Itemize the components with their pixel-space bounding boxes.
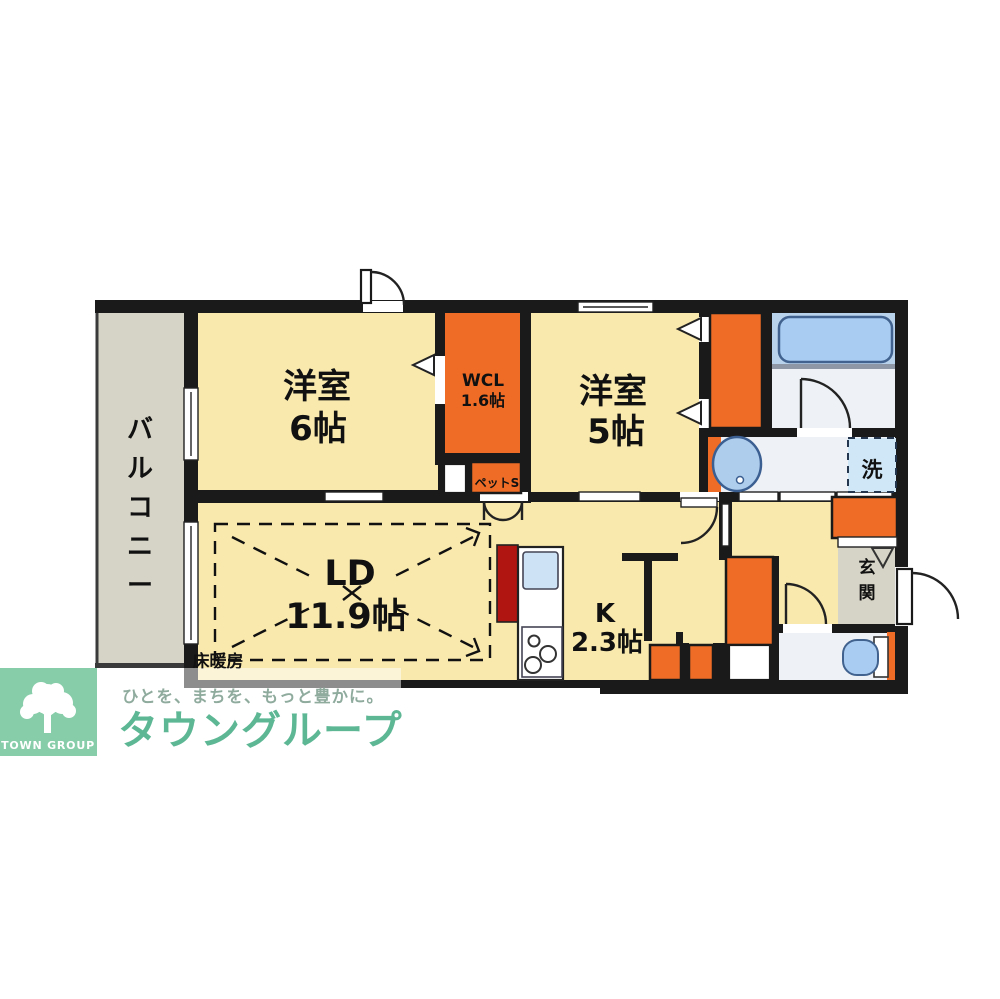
ld-size: 11.9帖	[285, 597, 406, 637]
logo-backdrop-fade	[96, 668, 401, 688]
closet-door-gap	[435, 356, 445, 404]
brand-company-name: タウングループ	[118, 708, 403, 754]
stove-burner	[529, 636, 540, 647]
brand-tagline: ひとを、まちを、もっと豊かに。	[122, 686, 384, 706]
kitchen-cabinet	[689, 645, 713, 680]
stove-burner	[540, 646, 556, 662]
kitchen-label: K	[595, 599, 616, 629]
tree-canopy	[48, 683, 64, 699]
sliding-opening	[722, 504, 729, 546]
ld-label: LD	[324, 554, 375, 594]
top-door-leaf	[361, 270, 371, 303]
hall-closet	[726, 557, 773, 645]
hall-door-leaf	[681, 498, 717, 507]
wall-segment	[713, 643, 729, 680]
bathroom-floor	[772, 369, 895, 428]
small-cabinet	[729, 645, 770, 680]
sliding-opening	[780, 492, 835, 501]
entrance-door-arc	[912, 573, 958, 619]
toilet	[843, 640, 878, 675]
balcony-bottom-edge	[95, 663, 184, 668]
wall-segment	[95, 300, 908, 313]
floorplan-image: バルコニー 洋室 6帖 WCL 1.6帖 ペットS 洋室 5帖 LD 11.9帖…	[0, 0, 1000, 999]
bedroom5-label: 洋室	[579, 372, 647, 412]
bathroom-door-gap	[797, 428, 852, 437]
floorplan-svg: バルコニー 洋室 6帖 WCL 1.6帖 ペットS 洋室 5帖 LD 11.9帖…	[0, 0, 1000, 999]
sliding-opening	[325, 492, 383, 501]
wcl-size: 1.6帖	[461, 391, 505, 410]
wall-segment	[762, 303, 772, 437]
bathroom-divider	[772, 364, 895, 369]
shoe-cabinet-shelf	[838, 537, 897, 547]
stove-burner	[525, 657, 541, 673]
kitchen-size: 2.3帖	[571, 628, 643, 658]
logo-text: TOWN GROUP	[1, 739, 95, 752]
bedroom6-label: 洋室	[283, 367, 351, 407]
toilet-door-gap	[783, 624, 832, 633]
kitchen-sink	[523, 552, 558, 589]
shoe-cabinet	[832, 497, 897, 538]
entrance-door-leaf	[897, 569, 912, 624]
wcl-label: WCL	[462, 371, 504, 391]
kitchen-partition	[644, 561, 652, 641]
pet-storage-label: ペットS	[475, 476, 520, 490]
bedroom5-size: 5帖	[587, 412, 645, 452]
kitchen-counter-panel	[497, 545, 518, 622]
bedroom6-size: 6帖	[289, 409, 347, 449]
kitchen-partition	[622, 553, 678, 561]
tree-trunk	[44, 705, 51, 733]
balcony-label: バルコニー	[127, 415, 153, 601]
sliding-opening	[739, 492, 778, 501]
bedroom5-closet	[710, 313, 762, 428]
kitchen-cabinet	[650, 645, 681, 680]
small-cabinet	[444, 464, 466, 493]
tree-canopy	[32, 682, 50, 700]
laundry-label: 洗	[862, 458, 883, 482]
town-group-logo: TOWN GROUP	[0, 668, 97, 756]
bathtub	[779, 317, 892, 362]
basin-drain	[737, 477, 744, 484]
tree-canopy	[20, 705, 34, 719]
sliding-opening	[579, 492, 640, 501]
tree-canopy	[62, 704, 76, 718]
